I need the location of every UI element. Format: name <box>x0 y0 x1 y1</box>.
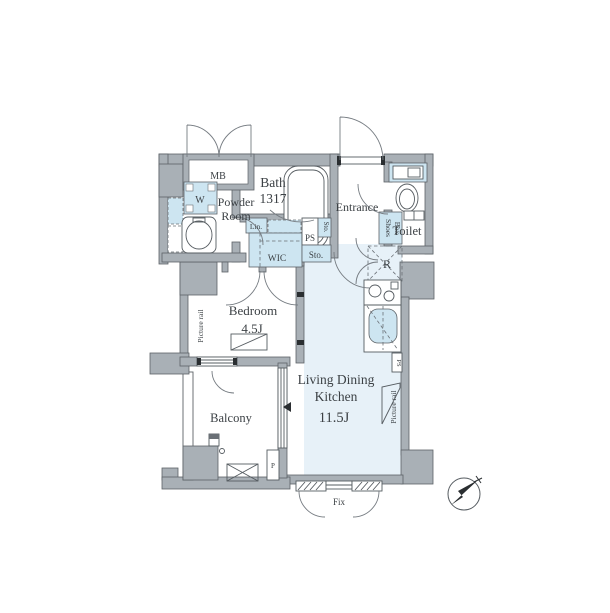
balcony-drain <box>220 449 225 454</box>
fix-window-label: Fix <box>333 497 346 507</box>
wic-door <box>264 271 298 305</box>
powder-room-label-1: Powder <box>218 195 255 209</box>
ldk-label-1: Living Dining <box>298 372 375 387</box>
north-arrow <box>451 480 478 505</box>
column-top-left <box>159 164 183 197</box>
linen-label: Lin. <box>250 222 262 231</box>
washer-corner <box>208 184 215 191</box>
entrance-threshold <box>339 157 383 164</box>
sto-small-label: Sto. <box>322 221 330 232</box>
entrance-door <box>340 117 383 160</box>
bath-size-label: 1317 <box>260 191 287 206</box>
window-end-cap <box>233 358 237 365</box>
washer-corner <box>208 205 215 212</box>
ldk-window-swing-right <box>353 491 379 517</box>
balcony-column <box>183 446 218 480</box>
picture-rail-right-label: Picture rail <box>389 390 398 423</box>
powder-shelf-lower <box>168 226 183 252</box>
ps-kitchen-label: PS <box>395 359 402 367</box>
ps-hall-label: PS <box>305 233 315 243</box>
balcony-label: Balcony <box>210 411 252 425</box>
shoes-box-label-2: Box <box>393 222 402 235</box>
compass <box>448 476 482 510</box>
floor-plan: MB W Powder Room Bath 1317 Entrance Toil… <box>0 0 610 613</box>
mb-label: MB <box>210 171 226 182</box>
wall-right-kitchen <box>401 297 409 455</box>
jamb-bedroom-door <box>222 262 228 272</box>
bedroom-label: Bedroom <box>229 303 277 318</box>
pipe-label: P <box>271 462 275 470</box>
wall-end-marker <box>297 292 304 297</box>
floor-plan-drawing: MB W Powder Room Bath 1317 Entrance Toil… <box>0 0 610 613</box>
wall-powder-bottom <box>162 253 246 262</box>
column-bottom-right <box>401 450 433 484</box>
wic-label: WIC <box>268 254 286 264</box>
powder-shelf-upper <box>168 198 183 224</box>
column-right <box>400 262 434 299</box>
ldk-size-label: 11.5J <box>319 410 350 426</box>
balcony-faucet-top <box>209 434 219 439</box>
bedroom-balcony-window <box>197 357 237 366</box>
refrigerator-label: R <box>383 257 391 271</box>
wall-end-marker <box>297 340 304 345</box>
powder-room-label-2: Room <box>221 209 251 223</box>
bedroom-size-label: 4.5J <box>241 321 262 336</box>
wall-toilet-bottom <box>398 246 433 254</box>
sto-main-label: Sto. <box>309 250 323 260</box>
washer-label: W <box>195 195 205 206</box>
washer-corner <box>186 184 193 191</box>
wall-bedroom-ldk <box>296 262 304 363</box>
bath-label: Bath <box>260 175 286 190</box>
ldk-floor <box>304 244 402 476</box>
mb-door-left <box>187 125 219 157</box>
balcony-door <box>212 371 234 393</box>
column-mid-left <box>180 262 217 295</box>
entrance-label: Entrance <box>336 200 379 214</box>
shoes-box-label-1: Shoes <box>384 219 393 237</box>
washer-corner <box>186 205 193 212</box>
compass-circle <box>448 478 480 510</box>
ldk-label-2: Kitchen <box>315 389 358 404</box>
dropped-ceiling-diagonal <box>231 334 267 350</box>
bedroom-door <box>226 271 260 305</box>
mb-door-right <box>219 125 251 157</box>
window-end-cap <box>197 358 201 365</box>
ldk-window-swing-left <box>299 491 325 517</box>
picture-rail-left-label: Picture rail <box>196 309 205 342</box>
